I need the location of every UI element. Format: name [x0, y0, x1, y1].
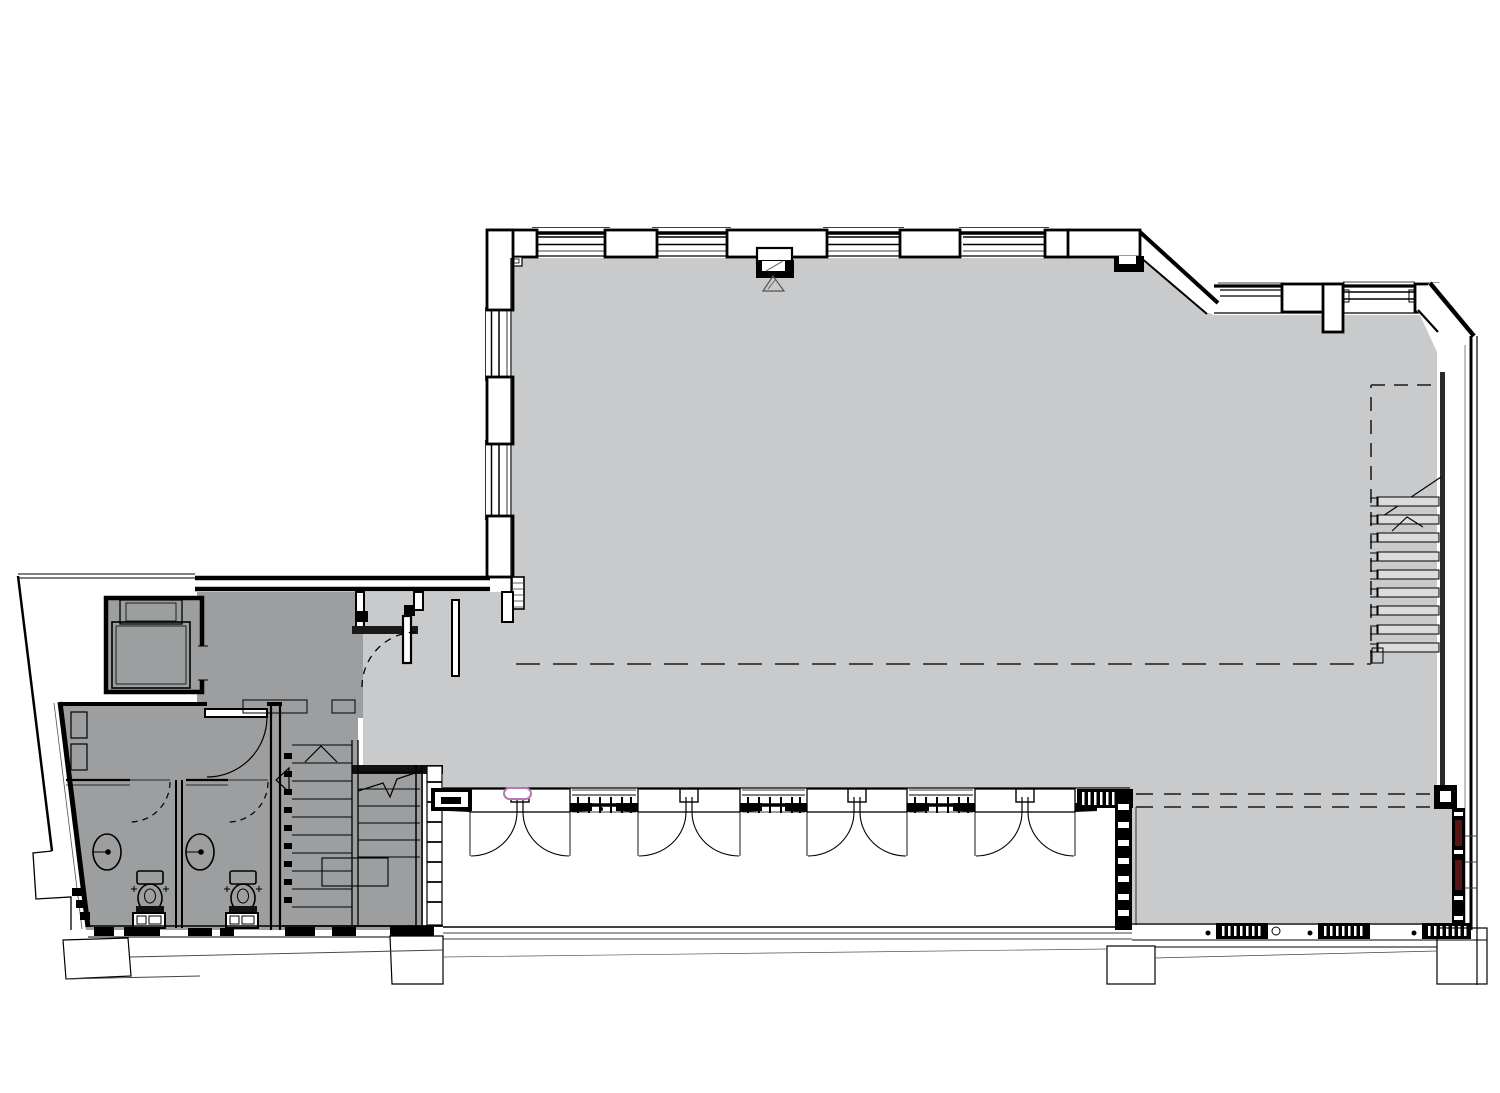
- stair-wall-hooks: [284, 753, 292, 903]
- heater-blocks: [1216, 923, 1471, 939]
- screen-wall-fin: [452, 600, 459, 676]
- pier-protrusion: [1323, 284, 1343, 332]
- lobby-door-leaf: [403, 616, 411, 663]
- door-hinge-block-2: [404, 605, 415, 616]
- right-stair-treads: [1370, 497, 1439, 652]
- highlight-pill: [504, 788, 531, 799]
- floor-plan-page: [0, 0, 1500, 1093]
- wall-niche-2: [1114, 256, 1144, 272]
- corner-column: [1434, 785, 1457, 809]
- door-hinge-block-1: [357, 611, 368, 622]
- side-entrance-block: [433, 790, 470, 809]
- floor-plan-svg: [0, 0, 1500, 1093]
- east-window-band: [1452, 808, 1465, 925]
